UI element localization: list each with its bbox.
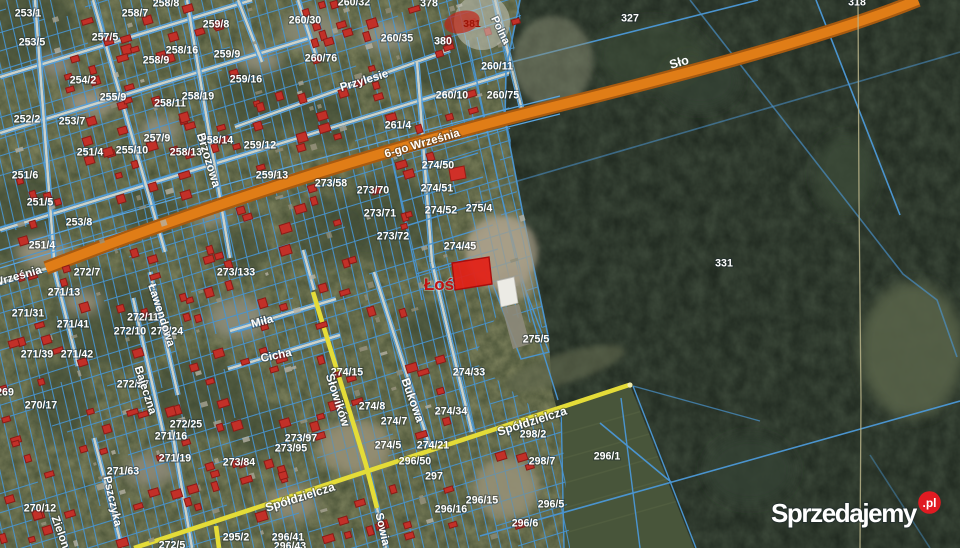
svg-text:296/16: 296/16 bbox=[435, 504, 468, 516]
svg-text:.pl: .pl bbox=[923, 496, 937, 510]
svg-text:255/10: 255/10 bbox=[116, 145, 149, 157]
svg-text:261/4: 261/4 bbox=[385, 120, 412, 132]
svg-text:260/35: 260/35 bbox=[381, 33, 414, 45]
svg-text:259/16: 259/16 bbox=[230, 74, 263, 86]
svg-text:258/7: 258/7 bbox=[122, 8, 149, 20]
svg-text:327: 327 bbox=[621, 13, 639, 25]
svg-text:271/19: 271/19 bbox=[159, 453, 192, 465]
svg-text:260/30: 260/30 bbox=[289, 15, 322, 27]
svg-text:270/12: 270/12 bbox=[24, 503, 57, 515]
svg-text:258/9: 258/9 bbox=[143, 55, 170, 67]
svg-text:331: 331 bbox=[715, 258, 733, 270]
svg-text:275/4: 275/4 bbox=[466, 203, 493, 215]
svg-text:251/4: 251/4 bbox=[77, 147, 104, 159]
svg-text:296/50: 296/50 bbox=[399, 456, 432, 468]
svg-text:254/2: 254/2 bbox=[70, 75, 97, 87]
svg-text:273/95: 273/95 bbox=[275, 443, 308, 455]
svg-text:251/4: 251/4 bbox=[29, 240, 56, 252]
svg-text:257/9: 257/9 bbox=[144, 133, 171, 145]
svg-text:274/52: 274/52 bbox=[425, 205, 458, 217]
svg-text:271/42: 271/42 bbox=[61, 349, 94, 361]
svg-text:271/16: 271/16 bbox=[155, 431, 188, 443]
svg-text:Łoś: Łoś bbox=[424, 275, 454, 294]
svg-text:260/10: 260/10 bbox=[436, 90, 469, 102]
svg-text:296/6: 296/6 bbox=[512, 518, 539, 530]
svg-text:298/7: 298/7 bbox=[529, 456, 556, 468]
svg-text:272/5: 272/5 bbox=[159, 540, 186, 548]
svg-text:274/8: 274/8 bbox=[359, 401, 386, 413]
svg-text:296/43: 296/43 bbox=[274, 541, 307, 548]
svg-text:318: 318 bbox=[848, 0, 866, 9]
svg-text:258/19: 258/19 bbox=[182, 91, 215, 103]
svg-text:274/33: 274/33 bbox=[453, 367, 486, 379]
svg-text:297: 297 bbox=[425, 471, 443, 483]
svg-text:381: 381 bbox=[463, 18, 481, 30]
svg-text:273/71: 273/71 bbox=[364, 208, 397, 220]
svg-text:253/8: 253/8 bbox=[66, 217, 93, 229]
svg-text:253/1: 253/1 bbox=[15, 8, 42, 20]
svg-text:272/7: 272/7 bbox=[74, 267, 101, 279]
svg-text:271/31: 271/31 bbox=[12, 308, 45, 320]
svg-text:258/16: 258/16 bbox=[166, 45, 199, 57]
svg-text:253/5: 253/5 bbox=[19, 37, 46, 49]
svg-text:272/10: 272/10 bbox=[114, 326, 147, 338]
svg-text:259/13: 259/13 bbox=[256, 170, 289, 182]
svg-text:274/34: 274/34 bbox=[435, 406, 468, 418]
svg-text:271/13: 271/13 bbox=[48, 287, 81, 299]
svg-text:273/84: 273/84 bbox=[223, 457, 256, 469]
svg-text:273/72: 273/72 bbox=[377, 231, 410, 243]
svg-text:274/21: 274/21 bbox=[417, 440, 450, 452]
svg-text:260/32: 260/32 bbox=[338, 0, 371, 9]
svg-text:273/70: 273/70 bbox=[357, 185, 390, 197]
svg-text:274/51: 274/51 bbox=[421, 183, 454, 195]
svg-text:253/7: 253/7 bbox=[59, 116, 86, 128]
svg-text:259/9: 259/9 bbox=[214, 49, 241, 61]
svg-text:274/50: 274/50 bbox=[422, 160, 455, 172]
svg-text:271/41: 271/41 bbox=[57, 319, 90, 331]
svg-text:296/5: 296/5 bbox=[538, 499, 565, 511]
svg-text:259/12: 259/12 bbox=[244, 140, 277, 152]
svg-text:275/5: 275/5 bbox=[523, 334, 550, 346]
svg-text:274/5: 274/5 bbox=[375, 440, 402, 452]
svg-text:270/17: 270/17 bbox=[25, 400, 58, 412]
svg-text:Sprzedajemy: Sprzedajemy bbox=[771, 498, 918, 528]
svg-text:269: 269 bbox=[0, 387, 14, 399]
svg-text:273/133: 273/133 bbox=[217, 267, 255, 279]
svg-text:260/11: 260/11 bbox=[481, 61, 513, 73]
svg-text:252/2: 252/2 bbox=[14, 114, 41, 126]
svg-text:258/8: 258/8 bbox=[153, 0, 180, 10]
svg-text:274/45: 274/45 bbox=[444, 241, 477, 253]
svg-text:257/5: 257/5 bbox=[92, 32, 119, 44]
svg-text:295/2: 295/2 bbox=[223, 532, 250, 544]
svg-text:380: 380 bbox=[434, 36, 452, 48]
svg-text:260/75: 260/75 bbox=[487, 90, 520, 102]
svg-text:378: 378 bbox=[420, 0, 438, 10]
svg-text:251/5: 251/5 bbox=[27, 197, 54, 209]
svg-text:272/25: 272/25 bbox=[170, 419, 203, 431]
svg-text:274/7: 274/7 bbox=[381, 416, 408, 428]
svg-text:259/8: 259/8 bbox=[203, 19, 230, 31]
svg-text:273/58: 273/58 bbox=[315, 178, 348, 190]
svg-text:260/76: 260/76 bbox=[305, 53, 338, 65]
svg-text:296/1: 296/1 bbox=[594, 451, 621, 463]
svg-text:296/15: 296/15 bbox=[466, 495, 499, 507]
svg-text:258/13: 258/13 bbox=[170, 147, 203, 159]
svg-text:251/6: 251/6 bbox=[12, 170, 39, 182]
svg-text:271/39: 271/39 bbox=[21, 349, 54, 361]
svg-text:255/9: 255/9 bbox=[100, 92, 127, 104]
